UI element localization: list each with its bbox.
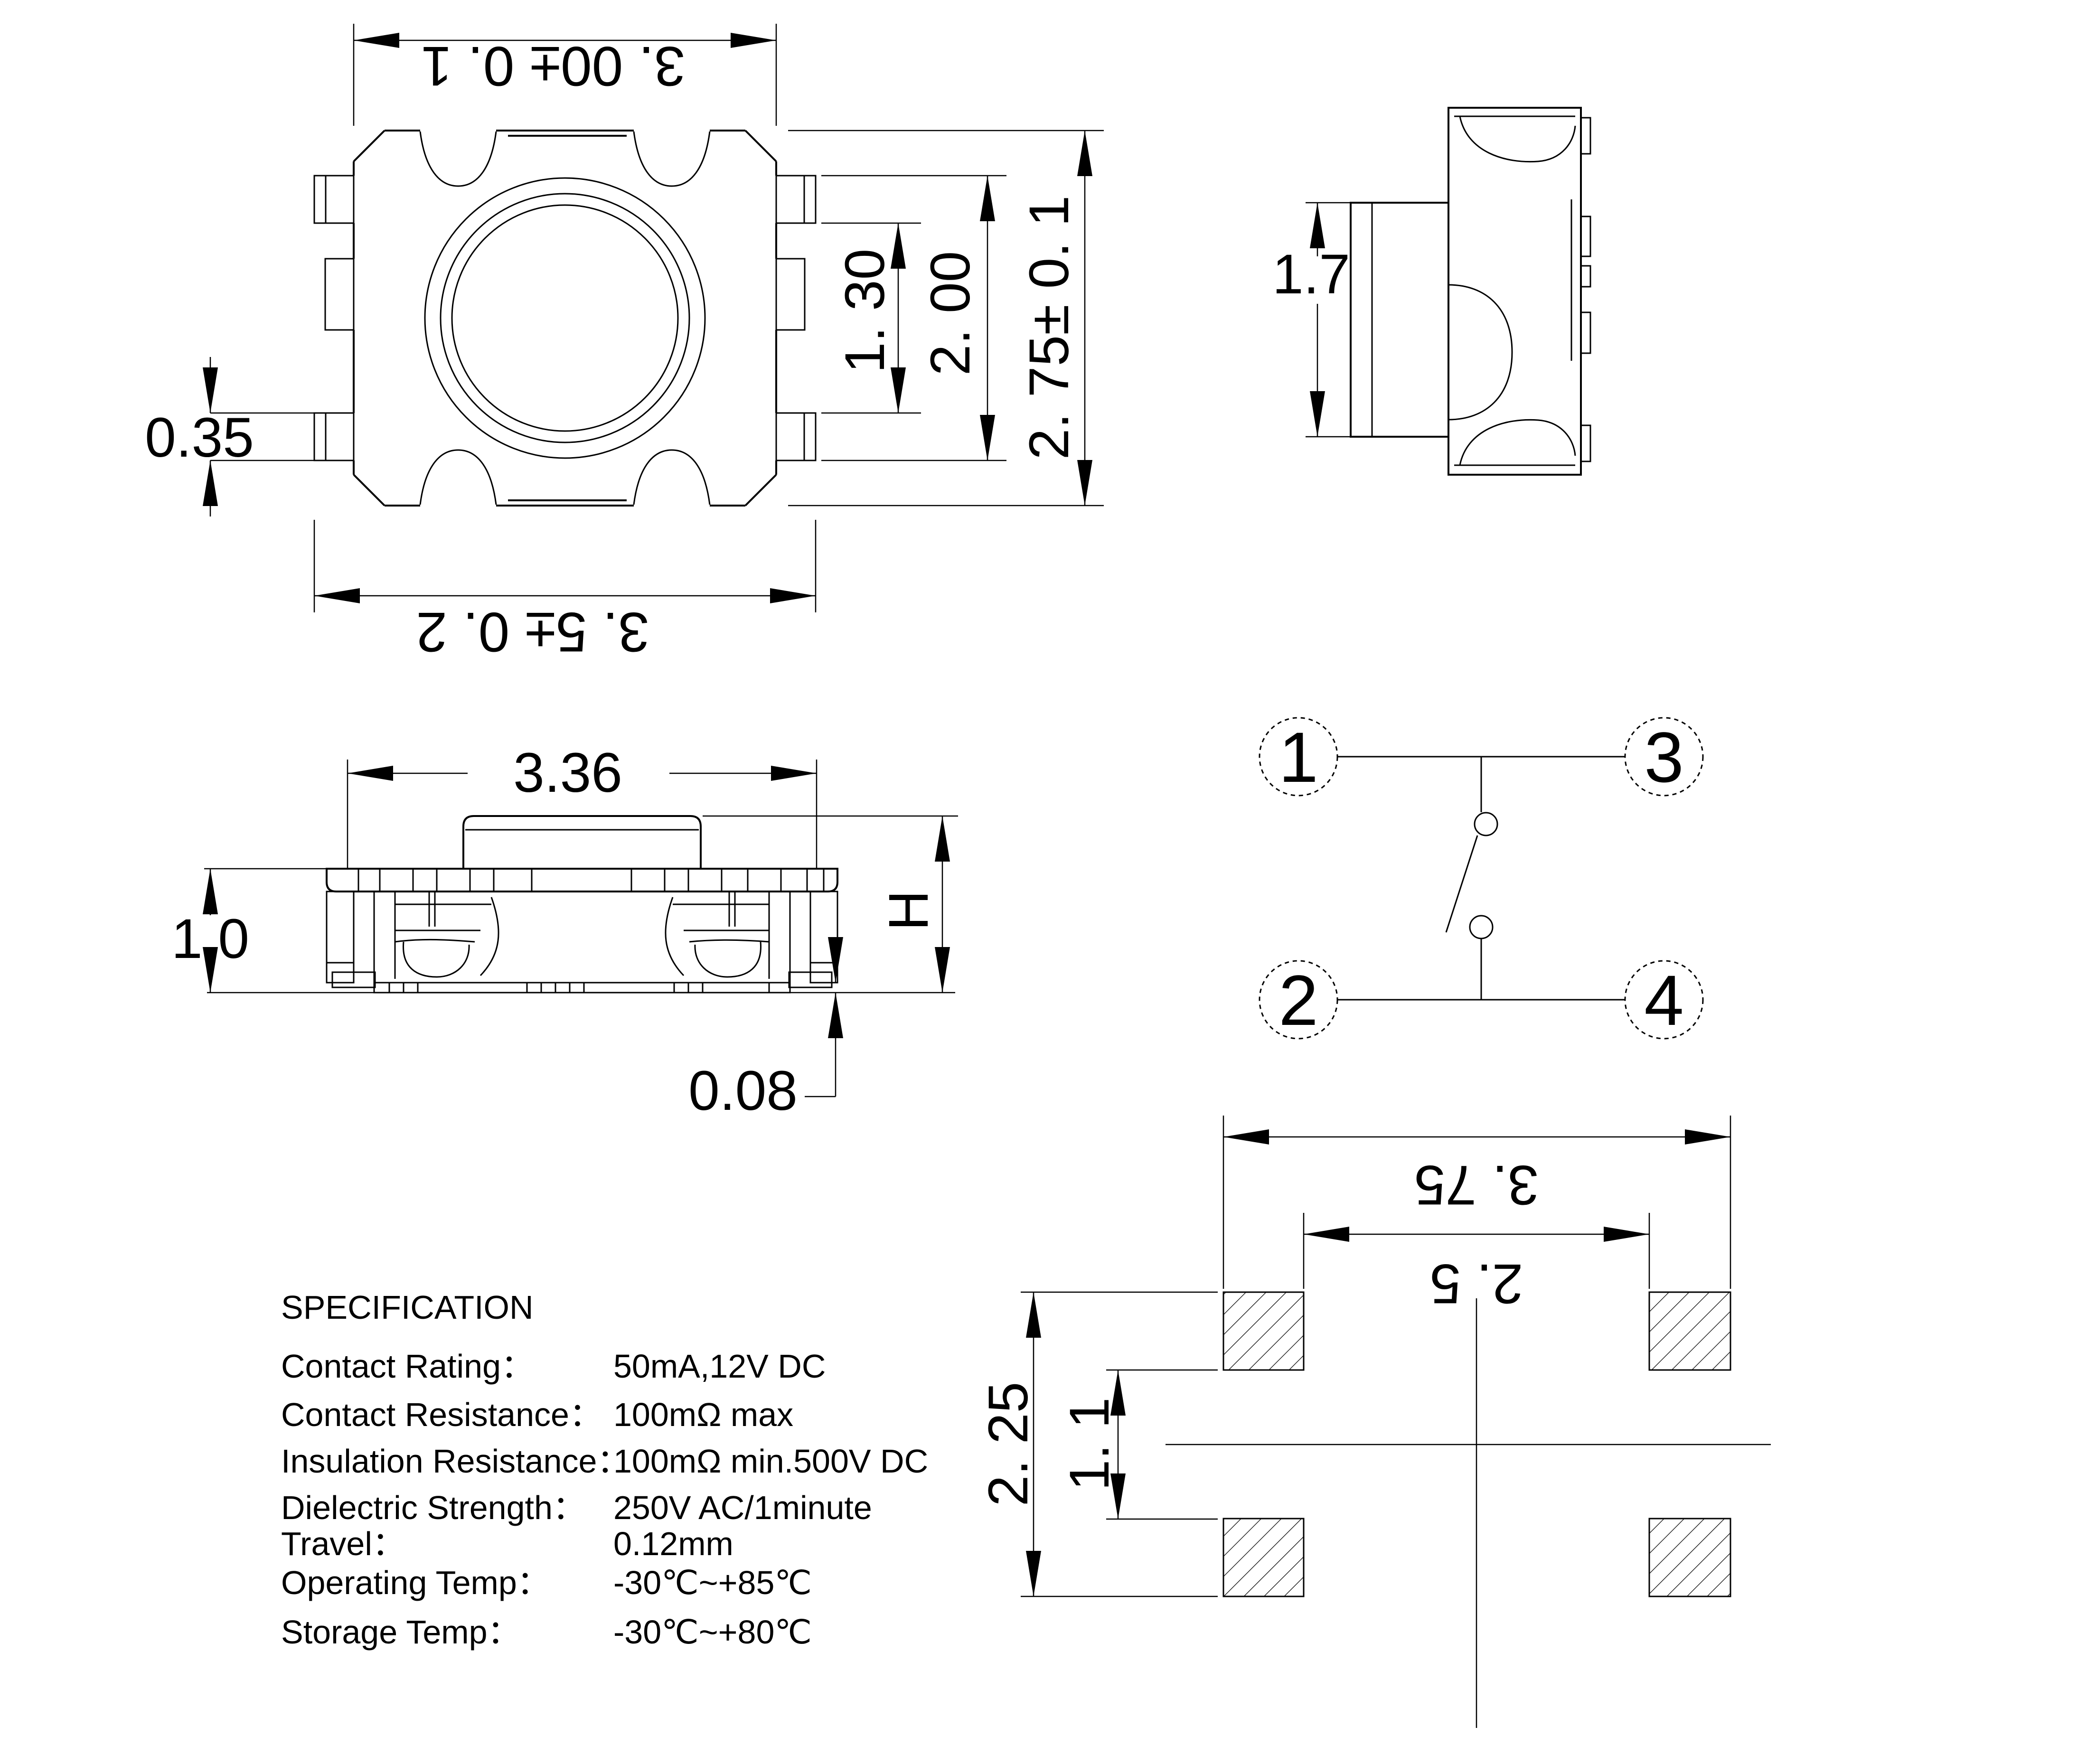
front-view-right-skirt — [810, 891, 837, 983]
spec-label-operating-temp: Operating Temp： — [281, 1564, 550, 1601]
spec-label-travel: Travel： — [281, 1525, 405, 1562]
pad-top-right — [1649, 1292, 1730, 1370]
dim-body-width-text: 3. 00± 0. 1 — [421, 35, 686, 97]
tact-switch-drawing: 3. 00± 0. 1 3. 5± 0. 2 0.35 1. 30 — [0, 0, 2087, 1764]
switch-contact-bottom — [1470, 916, 1493, 938]
dim-base-height: 1.0 — [171, 869, 332, 993]
circuit-schematic: 1 3 2 4 — [1260, 717, 1703, 1040]
front-view-strip-ticks — [389, 983, 769, 993]
dim-contact-inner-span-text: 1. 30 — [834, 249, 896, 373]
front-view-plate — [327, 869, 837, 891]
dim-base-height-text: 1.0 — [171, 908, 249, 970]
side-view-terminal-ticks — [1581, 118, 1590, 461]
switch-arm — [1446, 835, 1477, 932]
top-view-button-circles — [425, 178, 705, 458]
front-view: 3.36 1.0 H 0.08 — [171, 741, 958, 1122]
spec-value-contact-resistance: 100mΩ max — [613, 1396, 793, 1433]
side-view-internal-bottom — [1454, 420, 1575, 465]
dim-contact-inner-span: 1. 30 — [821, 223, 921, 413]
dim-base-width-text: 3.36 — [513, 741, 622, 804]
specification-block: SPECIFICATION Contact Rating： 50mA,12V D… — [281, 1289, 928, 1651]
side-view-button — [1351, 203, 1448, 437]
pad-bottom-right — [1649, 1519, 1730, 1596]
front-view-left-skirt — [327, 891, 354, 983]
spec-label-dielectric-strength: Dielectric Strength： — [281, 1489, 586, 1526]
top-view-lead-slots — [420, 131, 710, 505]
pad-bottom-left — [1223, 1519, 1304, 1596]
spec-value-travel: 0.12mm — [613, 1525, 733, 1562]
terminal-2-label: 2 — [1279, 960, 1318, 1040]
dim-overall-height-text: H — [877, 890, 940, 930]
spec-value-dielectric-strength: 250V AC/1minute — [613, 1489, 872, 1526]
spec-label-storage-temp: Storage Temp： — [281, 1614, 521, 1651]
top-view-body-outline — [354, 131, 776, 506]
terminal-1-label: 1 — [1279, 717, 1318, 797]
engineering-drawing-page: 3. 00± 0. 1 3. 5± 0. 2 0.35 1. 30 — [0, 0, 2087, 1764]
front-view-cap — [463, 816, 701, 869]
dim-pad-outer-height-text: 2. 25 — [977, 1382, 1040, 1506]
dim-pad-outer-span-text: 3. 75 — [1414, 1154, 1539, 1216]
terminal-3-label: 3 — [1644, 717, 1683, 797]
spec-label-contact-resistance: Contact Resistance： — [281, 1396, 602, 1433]
switch-contact-top — [1475, 813, 1497, 835]
dim-pad-inner-height-text: 1. 1 — [1058, 1398, 1121, 1491]
side-view-plunger-guide — [1448, 285, 1512, 420]
dim-body-depth-text: 2. 75± 0. 1 — [1018, 196, 1081, 460]
top-view-left-lead — [325, 259, 354, 330]
pcb-land-pattern: 3. 75 2. 5 2. 25 1. 1 — [977, 1116, 1771, 1728]
spec-label-contact-rating: Contact Rating： — [281, 1348, 534, 1385]
dim-foot-thickness-text: 0.08 — [688, 1060, 798, 1122]
dim-pad-inner-span-text: 2. 5 — [1430, 1252, 1523, 1315]
front-view-bottom-strip — [374, 983, 790, 993]
dim-base-width: 3.36 — [348, 741, 817, 868]
side-view-body — [1448, 108, 1581, 475]
top-view-right-lead — [776, 259, 805, 330]
dim-stem-diameter: 1.7 — [1272, 203, 1351, 437]
spec-value-insulation-resistance: 100mΩ min.500V DC — [613, 1443, 928, 1480]
pad-top-left — [1223, 1292, 1304, 1370]
dim-tab-width-text: 0.35 — [145, 406, 254, 469]
dim-body-width: 3. 00± 0. 1 — [354, 24, 776, 126]
front-view-right-leg — [666, 891, 790, 983]
dim-overall-width-text: 3. 5± 0. 2 — [416, 601, 649, 663]
spec-value-operating-temp: -30℃~+85℃ — [613, 1564, 812, 1601]
dim-contact-outer-span-text: 2. 00 — [919, 251, 982, 375]
side-view-internal-top — [1454, 116, 1575, 162]
top-view-corner-tabs — [314, 176, 816, 460]
side-view: 1.7 — [1272, 108, 1590, 475]
spec-title: SPECIFICATION — [281, 1289, 534, 1326]
dim-stem-diameter-text: 1.7 — [1272, 243, 1350, 306]
spec-value-contact-rating: 50mA,12V DC — [613, 1348, 826, 1385]
top-view: 3. 00± 0. 1 3. 5± 0. 2 0.35 1. 30 — [145, 24, 1104, 663]
dim-overall-width: 3. 5± 0. 2 — [314, 520, 816, 663]
dim-foot-thickness: 0.08 — [688, 942, 836, 1122]
terminal-4-label: 4 — [1644, 960, 1683, 1040]
front-view-plate-ticks — [358, 869, 824, 891]
dim-pad-inner-span: 2. 5 — [1304, 1213, 1649, 1315]
spec-label-insulation-resistance: Insulation Resistance： — [281, 1443, 630, 1480]
spec-value-storage-temp: -30℃~+80℃ — [613, 1614, 812, 1651]
dim-tab-width: 0.35 — [145, 357, 354, 516]
front-view-left-leg — [374, 891, 498, 983]
